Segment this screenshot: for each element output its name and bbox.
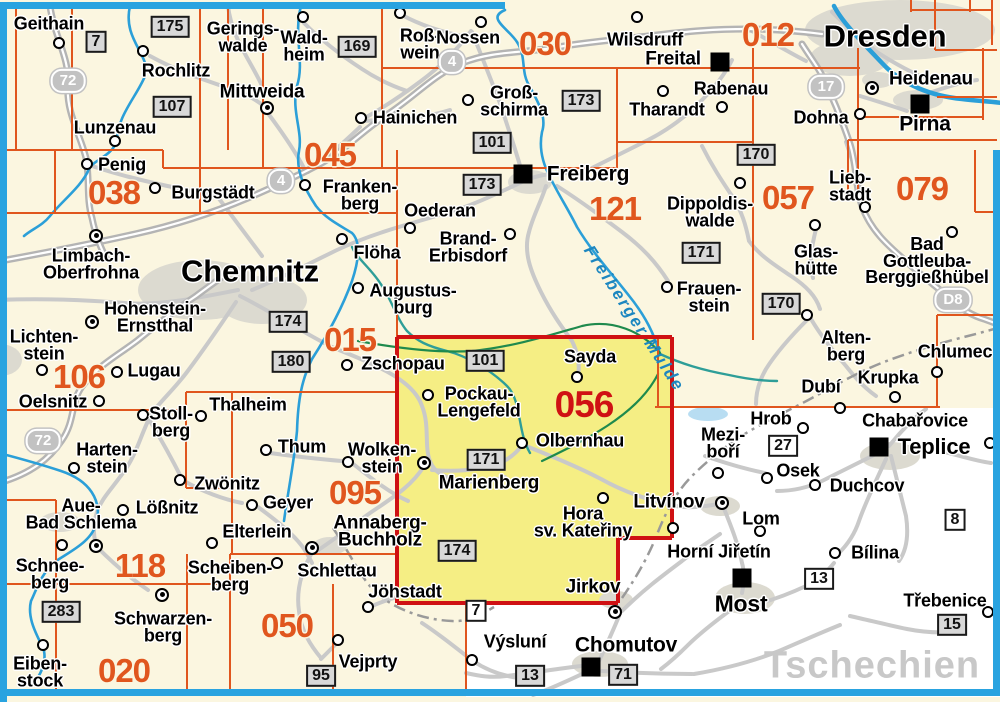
town-marker-circle [246,499,258,511]
town-marker-circle [597,492,609,504]
town-label: Osek [776,463,819,480]
town-label: Rochlitz [142,63,210,80]
town-label: Burgstädt [171,185,254,202]
sheet-boundary-line [937,96,997,99]
town-marker-circle [36,364,48,376]
sheet-boundary-line [655,406,940,409]
town-marker-circle [931,366,943,378]
road-number-badge: 174 [269,311,308,333]
town-label: Chabařovice [862,413,968,430]
town-marker-circle [889,391,901,403]
road-number-badge: 173 [463,174,502,196]
town-marker-square [733,569,752,588]
town-label: Olbernhau [536,433,624,450]
town-marker-circle [854,108,866,120]
town-marker-square [711,53,730,72]
town-label: Vejprty [339,654,398,671]
town-marker-circle [631,11,643,23]
sheet-number-020[interactable]: 020 [98,652,150,690]
sheet-number-057[interactable]: 057 [762,179,814,217]
town-marker-circle [174,474,186,486]
road-number-badge: 170 [762,293,801,315]
town-label: Tharandt [629,102,704,119]
town-label: Gerings- walde [207,20,279,53]
town-label: Heidenau [889,70,973,87]
town-label: Elterlein [222,524,291,541]
town-label: Zschopau [361,356,444,373]
town-label: Oelsnitz [19,394,87,411]
sheet-number-038[interactable]: 038 [88,174,140,212]
motorway-shield: 17 [809,75,844,99]
town-marker-dotcircle [865,81,879,95]
town-label: Sayda [564,349,616,366]
town-label: Scheiben- berg [188,559,272,592]
town-label: Alten- berg [821,329,871,362]
sheet-boundary-line [186,391,397,394]
road-number-badge: 171 [467,449,506,471]
town-label: Eiben- stock [13,655,67,688]
town-marker-circle [797,422,809,434]
town-label: Pockau- Lengefeld [437,385,520,418]
town-marker-circle [195,410,207,422]
town-marker-circle [712,467,724,479]
town-marker-circle [53,37,65,49]
town-label: Chlumec [918,344,993,361]
town-marker-circle [829,547,841,559]
road-number-badge: 8 [945,509,966,531]
town-marker-circle [37,639,49,651]
sheet-number-056[interactable]: 056 [555,384,614,426]
town-label: Schnee- berg [16,557,85,590]
town-marker-circle [462,94,474,106]
town-marker-circle [809,219,821,231]
map-canvas: Freiberger Mulde Tschechien 030012045038… [0,0,1000,702]
town-marker-dotcircle [155,588,169,602]
road-number-badge: 101 [473,132,512,154]
town-label: Dohna [794,110,849,127]
town-marker-square [870,438,889,457]
town-marker-dotcircle [89,229,103,243]
town-label: Lom [742,511,779,528]
neatline-left [0,2,7,702]
sheet-boundary-line [54,150,57,213]
town-label: Dippoldis- walde [667,195,753,228]
town-label: Oederan [404,203,476,220]
town-label: Lichten- stein [10,328,78,361]
road-number-badge: 13 [804,568,834,590]
town-marker-circle [475,16,487,28]
town-marker-circle [299,179,311,191]
town-label: Dresden [824,23,947,52]
sheet-boundary-line [162,150,165,168]
town-label: Dubí [801,379,840,396]
town-marker-circle [571,371,583,383]
town-label: Lieb- stadt [829,169,871,202]
sheet-boundary-line [381,8,384,168]
motorway-shield: D8 [934,288,971,312]
town-label: Augustus- burg [369,282,456,315]
town-label: Penig [98,157,146,174]
road-number-badge: 15 [937,614,967,636]
sheet-boundary-line [617,141,753,144]
sheet-number-121[interactable]: 121 [589,190,641,228]
town-marker-circle [271,557,283,569]
town-label: Bad Gottleuba- Berggießhübel [865,236,988,286]
town-label: Limbach- Oberfrohna [43,247,139,280]
town-label: Lößnitz [136,500,199,517]
road-number-badge: 95 [306,665,336,687]
sheet-number-012[interactable]: 012 [742,16,794,54]
road-number-badge: 171 [682,242,721,264]
town-marker-dotcircle [417,456,431,470]
town-label: Schlettau [297,563,376,580]
town-marker-circle [260,444,272,456]
town-label: Hrob [750,411,791,428]
sheet-number-045[interactable]: 045 [304,136,356,174]
town-label: Most [715,593,768,614]
town-marker-circle [362,601,374,613]
road-number-badge: 169 [338,36,377,58]
town-marker-square [582,658,601,677]
town-label: Brand- Erbisdorf [429,230,507,263]
road-number-badge: 174 [438,540,477,562]
town-label: Wilsdruff [607,32,683,49]
town-label: Chemnitz [181,258,319,287]
sheet-number-030[interactable]: 030 [519,25,571,63]
town-marker-circle [137,45,149,57]
town-label: Lunzenau [74,120,156,137]
town-marker-circle [352,282,364,294]
town-label: Wolken- stein [348,441,416,474]
town-marker-circle [667,522,679,534]
town-marker-circle [657,85,669,97]
sheet-boundary-line [991,0,994,45]
town-label: Lugau [128,363,181,380]
town-label: Frauen- stein [677,280,742,313]
town-marker-circle [761,472,773,484]
town-label: Schwarzen- berg [114,610,212,643]
road-number-badge: 13 [515,665,545,687]
town-marker-circle [93,395,105,407]
town-label: Nossen [436,30,500,47]
road-number-badge: 7 [86,31,107,53]
town-marker-circle [341,359,353,371]
town-label: Thalheim [209,397,286,414]
sheet-number-095[interactable]: 095 [329,474,381,512]
town-marker-circle [734,177,746,189]
sheet-number-118[interactable]: 118 [115,547,165,585]
neatline-bottom [0,689,1000,696]
town-marker-square [911,95,930,114]
town-label: Franken- berg [323,178,397,211]
road-number-badge: 107 [153,96,192,118]
town-label: Pirna [899,114,951,133]
town-label: Jöhstadt [368,584,441,601]
town-label: Hohenstein- Ernstthal [104,300,206,333]
town-label: Mezi- boří [701,426,745,459]
motorway-shield: 72 [51,69,86,93]
town-label: Litvínov [633,493,704,510]
town-marker-circle [355,112,367,124]
road-number-badge: 71 [608,664,638,686]
town-label: Flöha [354,245,401,262]
town-marker-square [514,165,533,184]
town-marker-circle [716,101,728,113]
town-label: Annaberg- Buchholz [333,515,426,550]
town-marker-dotcircle [715,496,729,510]
town-label: Stoll- berg [149,405,193,438]
motorway-shield: 4 [268,169,294,193]
neatline-right [993,150,1000,696]
highlighted-sheet-boundary-line [397,335,672,339]
town-marker-circle [801,309,813,321]
town-marker-dotcircle [608,605,622,619]
sheet-number-079[interactable]: 079 [896,170,948,208]
motorway-shield: 72 [26,429,61,453]
town-marker-dotcircle [260,101,274,115]
sheet-boundary-line [982,48,985,120]
town-label: Horní Jiřetín [667,544,770,561]
town-marker-circle [336,233,348,245]
town-label: Hora sv. Kateřiny [534,505,632,538]
town-marker-dotcircle [89,539,103,553]
town-label: Bílina [851,545,899,562]
road-number-badge: 173 [562,90,601,112]
town-marker-circle [111,366,123,378]
sheet-number-106[interactable]: 106 [53,358,105,396]
town-marker-circle [834,402,846,414]
sheet-boundary-line [848,139,997,142]
town-marker-circle [516,437,528,449]
sheet-boundary-line [616,68,619,168]
town-label: Mittweida [220,83,305,100]
town-marker-circle [117,504,129,516]
town-label: Glas- hütte [794,243,838,276]
town-label: Roß- wein [400,27,440,60]
sheet-number-050[interactable]: 050 [261,607,313,645]
town-marker-circle [206,537,218,549]
town-label: Zwönitz [194,476,260,493]
sheet-boundary-line [937,314,997,317]
town-label: Hainichen [373,110,457,127]
town-marker-circle [422,389,434,401]
town-label: Groß- schirma [480,84,548,117]
town-label: Wald- heim [280,29,327,62]
road-number-badge: 175 [151,16,190,38]
town-label: Marienberg [439,474,539,491]
road-number-badge: 170 [737,144,776,166]
town-label: Freital [645,50,701,67]
town-marker-circle [809,479,821,491]
town-label: Jirkov [566,578,621,595]
town-marker-circle [661,281,673,293]
town-label: Duchcov [830,478,905,495]
road-number-badge: 101 [466,350,505,372]
town-marker-circle [297,11,309,23]
town-marker-circle [137,409,149,421]
road-number-badge: 283 [42,601,81,623]
town-marker-circle [404,222,416,234]
town-label: Teplice [898,437,971,457]
town-label: Thum [278,439,326,456]
town-label: Freiberg [547,164,629,183]
town-marker-circle [81,158,93,170]
sheet-boundary-line [0,212,397,215]
sheet-boundary-line [0,149,163,152]
town-label: Krupka [858,370,919,387]
town-marker-dotcircle [85,315,99,329]
town-label: Geithain [14,16,84,33]
town-label: Výsluní [484,634,547,651]
town-label: Třebenice [903,593,986,610]
town-marker-circle [332,634,344,646]
town-label: Geyer [263,495,313,512]
road-number-badge: 180 [272,351,311,373]
sheet-boundary-line [911,9,992,12]
road-number-badge: 7 [466,600,487,622]
town-marker-circle [149,182,161,194]
sheet-boundary-line [974,150,977,212]
town-marker-circle [56,539,68,551]
neatline-top [0,2,505,9]
town-marker-circle [466,654,478,666]
town-label: Harten- stein [76,441,138,474]
town-label: Rabenau [694,81,769,98]
motorway-shield: 4 [439,50,465,74]
road-number-badge: 27 [768,435,798,457]
country-label: Tschechien [764,645,980,688]
town-marker-dotcircle [305,541,319,555]
town-label: Chomutov [575,635,677,654]
